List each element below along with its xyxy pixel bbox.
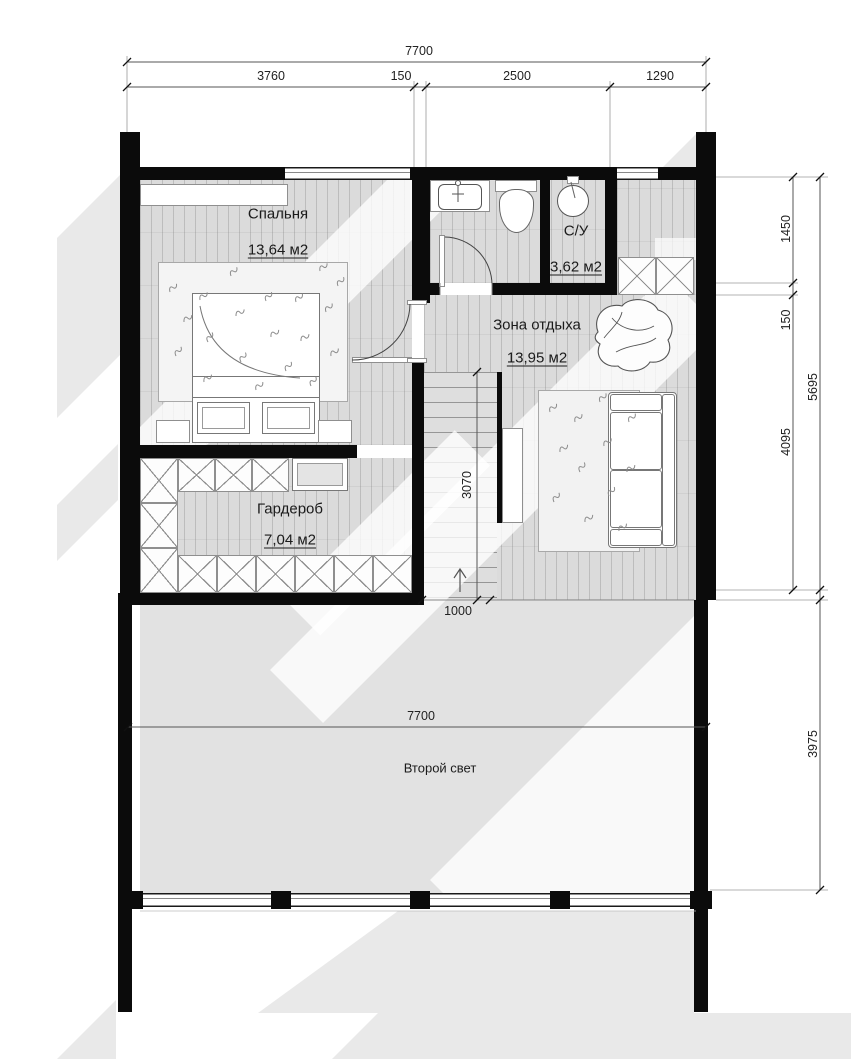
rug-fur-texture: [168, 263, 637, 531]
plan-linework: [0, 0, 851, 1059]
room-label-second-light: Второй свет: [404, 761, 477, 776]
room-label-bedroom: Спальня: [248, 206, 308, 223]
dim-top-seg-2: 150: [391, 69, 412, 83]
room-area-bathroom: 3,62 м2: [550, 259, 602, 276]
dim-stair-run: 3070: [460, 471, 474, 499]
plant: [595, 300, 672, 371]
room-area-bedroom: 13,64 м2: [248, 242, 308, 259]
dim-stair-width: 1000: [444, 604, 472, 618]
dim-top-total: 7700: [405, 44, 433, 58]
dim-top-seg-3: 2500: [503, 69, 531, 83]
dim-top-seg-4: 1290: [646, 69, 674, 83]
room-label-lounge: Зона отдыха: [493, 317, 581, 334]
room-label-bathroom: С/У: [564, 223, 589, 240]
dim-right-seg-3: 4095: [779, 428, 793, 456]
stair-direction-arrow: [454, 569, 466, 592]
door-arcs: [352, 237, 492, 360]
room-area-lounge: 13,95 м2: [507, 350, 567, 367]
dim-right-lower: 3975: [806, 730, 820, 758]
floor-plan-canvas: Спальня 13,64 м2 С/У 3,62 м2 Зона отдыха…: [0, 0, 851, 1059]
room-area-wardrobe: 7,04 м2: [264, 532, 316, 549]
dim-right-total: 5695: [806, 373, 820, 401]
dim-bottom-width: 7700: [407, 709, 435, 723]
dim-right-seg-1: 1450: [779, 215, 793, 243]
sink-faucet: [452, 181, 575, 203]
dim-right-seg-2: 150: [779, 310, 793, 331]
dim-top-seg-1: 3760: [257, 69, 285, 83]
room-label-wardrobe: Гардероб: [257, 501, 323, 518]
